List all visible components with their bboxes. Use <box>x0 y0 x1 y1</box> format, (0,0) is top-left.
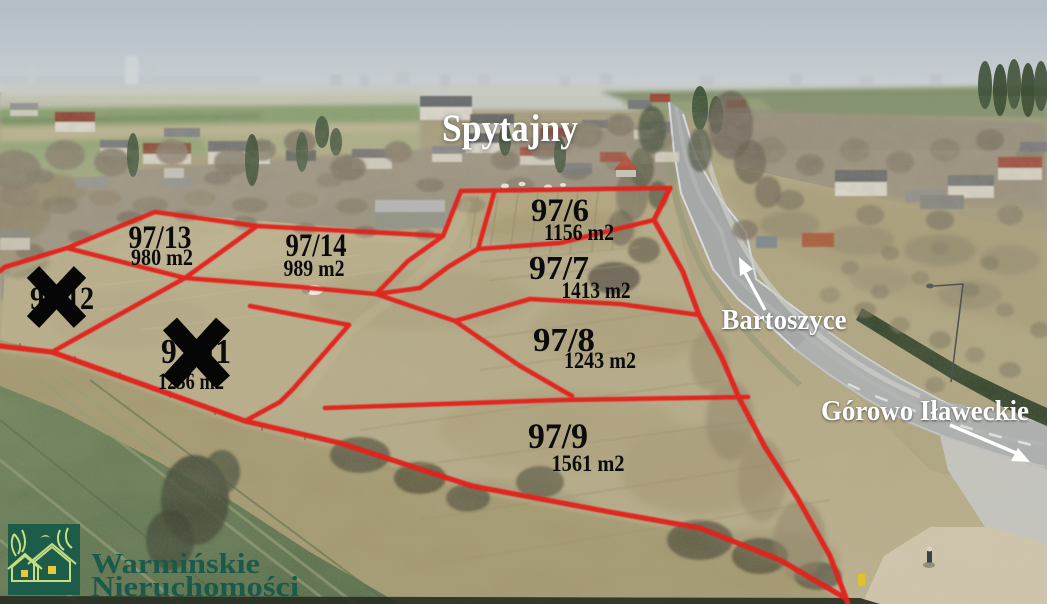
svg-text:Bartoszyce: Bartoszyce <box>722 305 847 336</box>
svg-text:Nieruchomości: Nieruchomości <box>91 571 299 603</box>
svg-text:Spytajny: Spytajny <box>442 107 578 150</box>
svg-text:989 m2: 989 m2 <box>284 256 345 281</box>
svg-text:1156 m2: 1156 m2 <box>544 220 614 245</box>
svg-text:97/9: 97/9 <box>528 416 588 456</box>
svg-text:1561 m2: 1561 m2 <box>552 451 625 476</box>
svg-text:Górowo Iławeckie: Górowo Iławeckie <box>821 396 1029 427</box>
svg-text:1243 m2: 1243 m2 <box>564 348 636 373</box>
svg-text:980 m2: 980 m2 <box>131 245 193 270</box>
svg-text:1413 m2: 1413 m2 <box>562 278 631 303</box>
